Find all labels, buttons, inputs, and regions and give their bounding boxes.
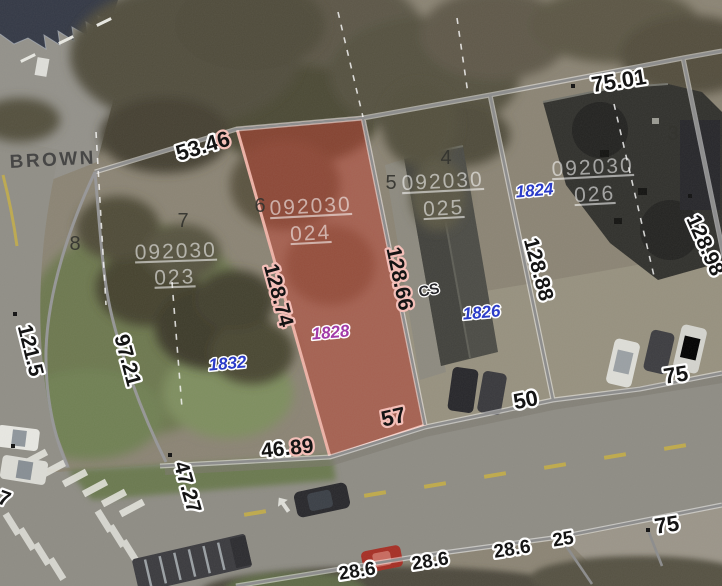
dimension-25: 25 bbox=[551, 527, 576, 551]
address-1824: 1824 bbox=[515, 179, 555, 201]
dimension-75-frontage: 75 bbox=[662, 360, 690, 389]
address-1826: 1826 bbox=[462, 301, 502, 323]
dimension-50: 50 bbox=[511, 385, 540, 414]
parcel-book-label: 092030 bbox=[269, 193, 352, 220]
parcel-num-label: 024 bbox=[290, 221, 332, 246]
lot-number-4: 4 bbox=[440, 147, 451, 169]
parcel-book-label: 092030 bbox=[134, 239, 217, 265]
parcel-book-label: 092030 bbox=[551, 154, 634, 181]
dimension-46-89-tail: 89 bbox=[289, 434, 315, 459]
address-1828-selected: 1828 bbox=[311, 321, 351, 343]
dimension-75-south: 75 bbox=[653, 510, 681, 539]
lot-number-3: 3 bbox=[667, 123, 678, 145]
parcel-num-label: 026 bbox=[574, 182, 616, 207]
address-1832: 1832 bbox=[208, 352, 248, 374]
lot-number-6: 6 bbox=[254, 195, 265, 217]
parcel-num-label: 025 bbox=[423, 196, 465, 221]
gis-parcel-map-view: BROWN 092030 023 092030 024 092030 025 0… bbox=[0, 0, 722, 586]
lot-number-5: 5 bbox=[385, 172, 396, 194]
lot-number-8: 8 bbox=[69, 233, 80, 255]
parcel-book-label: 092030 bbox=[401, 168, 484, 195]
dimension-46-89-main: 46. bbox=[260, 437, 291, 463]
parcel-num-label: 023 bbox=[154, 265, 196, 289]
map-canvas[interactable]: BROWN 092030 023 092030 024 092030 025 0… bbox=[0, 0, 722, 586]
lot-number-7: 7 bbox=[177, 210, 188, 232]
